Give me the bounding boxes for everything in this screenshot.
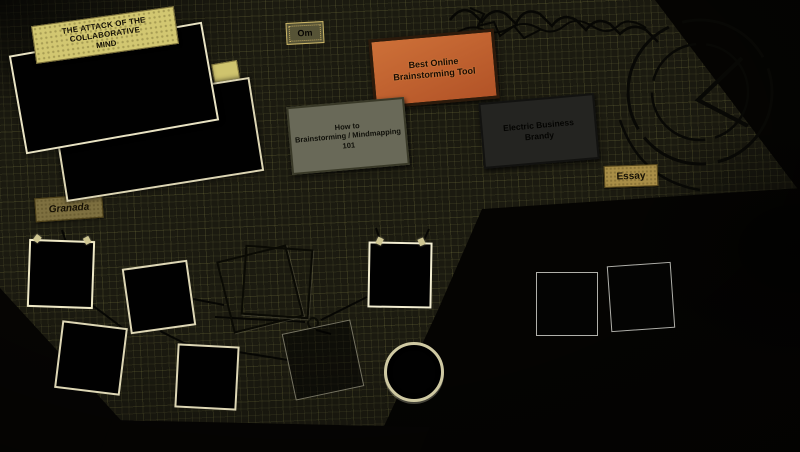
outline-square-2[interactable] <box>241 245 314 320</box>
circle-frame[interactable] <box>384 342 444 402</box>
right-tape-tag[interactable]: Essay <box>604 164 659 188</box>
orange-card-line-2: Brainstorming Tool <box>393 65 476 83</box>
square-frame-right-1[interactable] <box>536 272 598 336</box>
right-tag-label: Essay <box>616 170 645 182</box>
pin-mark <box>33 234 42 243</box>
square-frame-e[interactable] <box>367 241 432 308</box>
framed-tag[interactable]: Om <box>285 21 324 45</box>
dark-note-card[interactable]: Electric Business Brandy <box>478 93 599 169</box>
orange-note-card[interactable]: Best Online Brainstorming Tool <box>368 29 500 110</box>
square-frame-c[interactable] <box>54 320 128 396</box>
canvas-board: THE ATTACK OF THE COLLABORATIVE MIND Om … <box>0 0 800 452</box>
left-tag-label: Granada <box>48 201 89 215</box>
pin-mark <box>83 236 92 245</box>
framed-tag-label: Om <box>297 28 313 39</box>
square-frame-a[interactable] <box>27 239 95 309</box>
pin-mark <box>417 237 425 246</box>
gray-card-line-3: 101 <box>342 140 355 150</box>
dark-card-line-2: Brandy <box>524 130 554 143</box>
pin-mark <box>375 237 383 246</box>
square-frame-d[interactable] <box>174 343 239 410</box>
square-frame-right-2[interactable] <box>607 262 675 332</box>
outline-square-3[interactable] <box>282 319 365 400</box>
gray-note-card[interactable]: How to Brainstorming / Mindmapping 101 <box>286 97 409 175</box>
square-frame-b[interactable] <box>122 260 197 335</box>
